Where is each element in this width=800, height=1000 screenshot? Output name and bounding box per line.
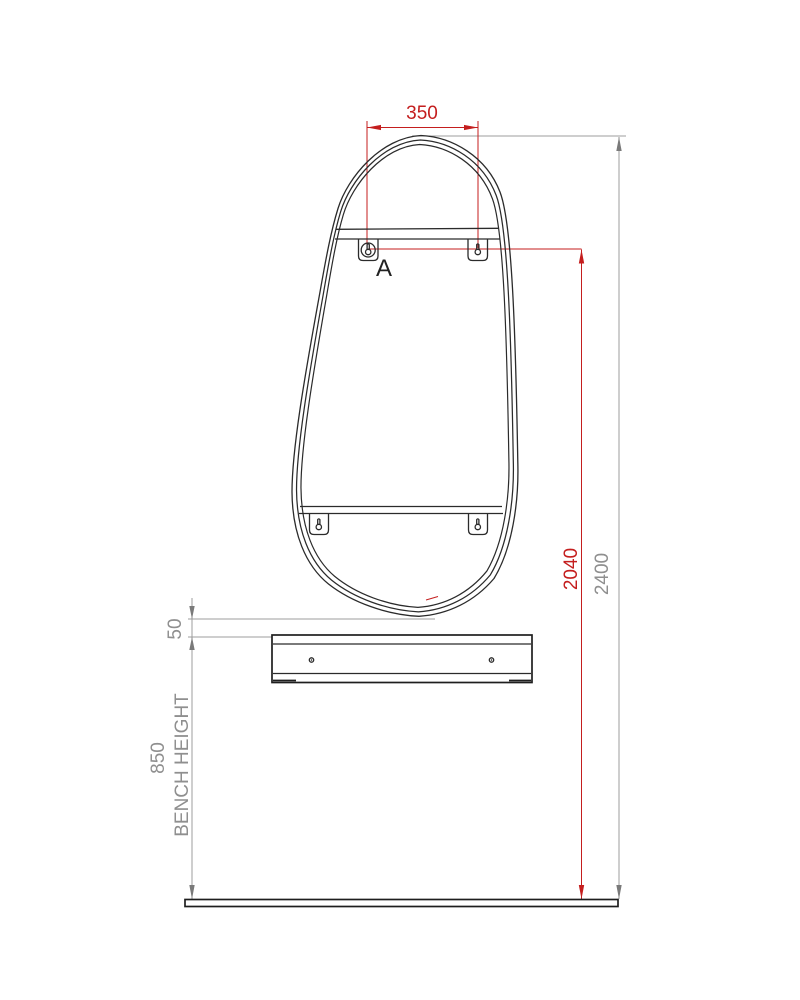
shelf — [272, 635, 532, 683]
shelf-screw-hole-right — [489, 658, 493, 662]
dim-2040-label: 2040 — [561, 548, 582, 590]
keyhole-icon — [475, 519, 480, 530]
installation-drawing: 2400 50 850 BENCH HEIGHT 350 2040 — [0, 0, 800, 1000]
bench-height-label: BENCH HEIGHT — [172, 693, 193, 837]
dim-bench-height-850: 850 BENCH HEIGHT — [148, 693, 193, 837]
arrow-down-icon — [616, 885, 621, 899]
keyhole-icon — [316, 519, 321, 530]
dim-2400-label: 2400 — [592, 553, 613, 595]
mirror-outline-middle — [297, 140, 514, 612]
dim-fixing-width-350: 350 — [367, 103, 478, 248]
arrow-up-icon — [616, 137, 621, 151]
mirror-outline-outer — [292, 136, 518, 617]
shelf-screw-hole-left — [309, 658, 313, 662]
dim-50-label: 50 — [165, 618, 186, 639]
dim-350-label: 350 — [406, 103, 438, 124]
arrow-left-icon — [367, 125, 381, 130]
dim-overall-height-2400: 2400 — [412, 136, 626, 899]
arrow-down-icon — [189, 885, 194, 899]
arrow-up-icon — [189, 637, 194, 650]
arrow-down-icon — [189, 606, 194, 619]
arrow-right-icon — [464, 125, 478, 130]
dim-fixing-height-2040: 2040 — [368, 249, 584, 899]
arrow-down-icon — [579, 885, 584, 899]
red-tick-mark — [426, 597, 438, 601]
keyhole-bracket-bottom-left — [310, 514, 329, 535]
keyhole-bracket-bottom-right — [469, 514, 488, 535]
dim-850-label: 850 — [148, 742, 169, 774]
arrow-up-icon — [579, 250, 584, 264]
keyhole-icon — [366, 244, 371, 255]
mirror: A — [292, 136, 518, 617]
bottom-mounting-rail — [299, 507, 503, 514]
detail-label-a: A — [376, 255, 392, 282]
top-mounting-rail — [335, 228, 500, 239]
floor-line — [185, 900, 618, 907]
dim-shelf-gap-50: 50 — [165, 598, 435, 899]
